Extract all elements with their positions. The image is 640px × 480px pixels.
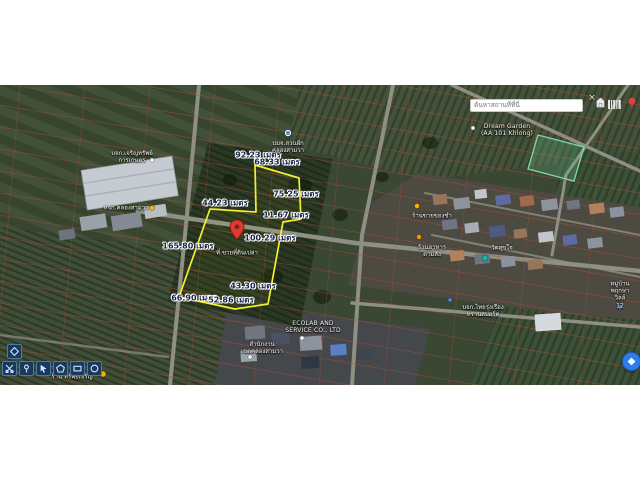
poi-blue-pin[interactable]: [448, 298, 452, 302]
home-icon[interactable]: [596, 93, 605, 112]
draw-rectangle-button[interactable]: [70, 361, 85, 376]
poi-village-pin[interactable]: [618, 305, 623, 310]
pin-tool-button[interactable]: [19, 361, 34, 376]
poi-company-pin[interactable]: [150, 158, 154, 162]
poi-grocery-pin[interactable]: [415, 204, 420, 209]
red-pin-icon[interactable]: [627, 93, 637, 112]
draw-polygon-button[interactable]: [53, 361, 68, 376]
search-bar: [470, 92, 583, 105]
draw-circle-button[interactable]: [87, 361, 102, 376]
screenshot-stage: 92.23 เมตร 68.33 เมตร 44.23 เมตร 75.25 เ…: [0, 0, 640, 480]
search-input[interactable]: [470, 99, 583, 112]
cut-tool-button[interactable]: [2, 361, 17, 376]
poi-temple-pin[interactable]: [482, 255, 488, 261]
select-tool-button[interactable]: [36, 361, 51, 376]
poi-restaurant-pin[interactable]: [417, 235, 422, 240]
poi-farm-pin[interactable]: [285, 130, 290, 135]
map-fab-button[interactable]: [622, 352, 640, 371]
poi-office-pin[interactable]: [248, 355, 252, 359]
satellite-map[interactable]: 92.23 เมตร 68.33 เมตร 44.23 เมตร 75.25 เ…: [0, 85, 640, 385]
poi-dream-garden-pin[interactable]: [471, 126, 475, 130]
barcode-icon[interactable]: [608, 94, 622, 113]
land-plot-polygon[interactable]: [179, 165, 301, 309]
poi-ecolab-pin[interactable]: [300, 336, 304, 340]
poi-shop-pin[interactable]: [150, 206, 155, 211]
layers-tool-button[interactable]: [7, 344, 22, 359]
